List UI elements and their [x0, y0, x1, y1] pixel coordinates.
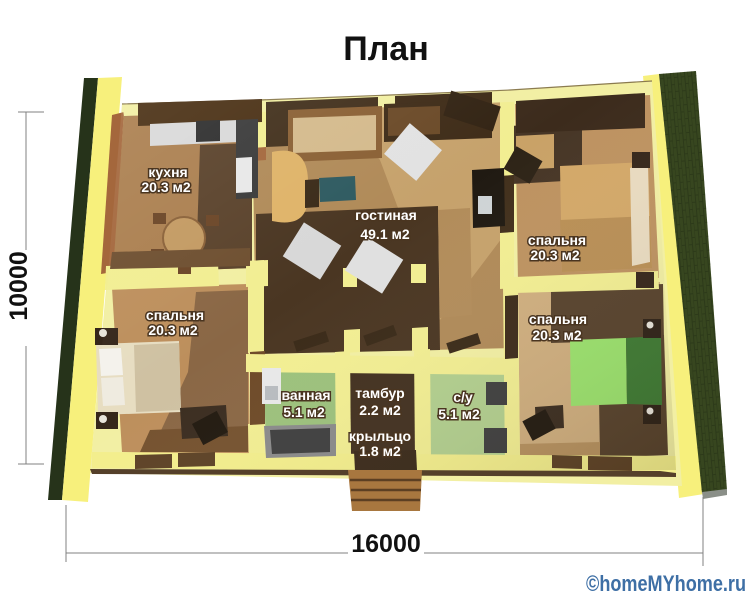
- svg-text:16000: 16000: [351, 530, 421, 558]
- svg-text:49.1 м2: 49.1 м2: [360, 226, 409, 242]
- svg-text:©homeMYhome.ru: ©homeMYhome.ru: [586, 571, 746, 596]
- svg-text:гостиная: гостиная: [355, 207, 417, 223]
- svg-text:20.3 м2: 20.3 м2: [532, 327, 581, 343]
- svg-text:спальня: спальня: [529, 311, 587, 327]
- svg-text:ванная: ванная: [281, 387, 330, 403]
- svg-text:с/у: с/у: [453, 389, 473, 405]
- svg-text:тамбур: тамбур: [355, 385, 404, 401]
- svg-text:1.8 м2: 1.8 м2: [359, 443, 401, 459]
- svg-text:10000: 10000: [5, 251, 33, 321]
- svg-text:5.1 м2: 5.1 м2: [438, 406, 480, 422]
- svg-text:кухня: кухня: [148, 164, 187, 180]
- svg-text:спальня: спальня: [528, 232, 586, 248]
- svg-text:2.2 м2: 2.2 м2: [359, 402, 401, 418]
- svg-text:5.1 м2: 5.1 м2: [283, 404, 325, 420]
- svg-text:спальня: спальня: [146, 307, 204, 323]
- svg-text:крыльцо: крыльцо: [349, 428, 411, 444]
- svg-text:План: План: [343, 30, 428, 68]
- svg-text:20.3 м2: 20.3 м2: [530, 247, 579, 263]
- svg-text:20.3 м2: 20.3 м2: [148, 322, 197, 338]
- svg-text:20.3 м2: 20.3 м2: [141, 179, 190, 195]
